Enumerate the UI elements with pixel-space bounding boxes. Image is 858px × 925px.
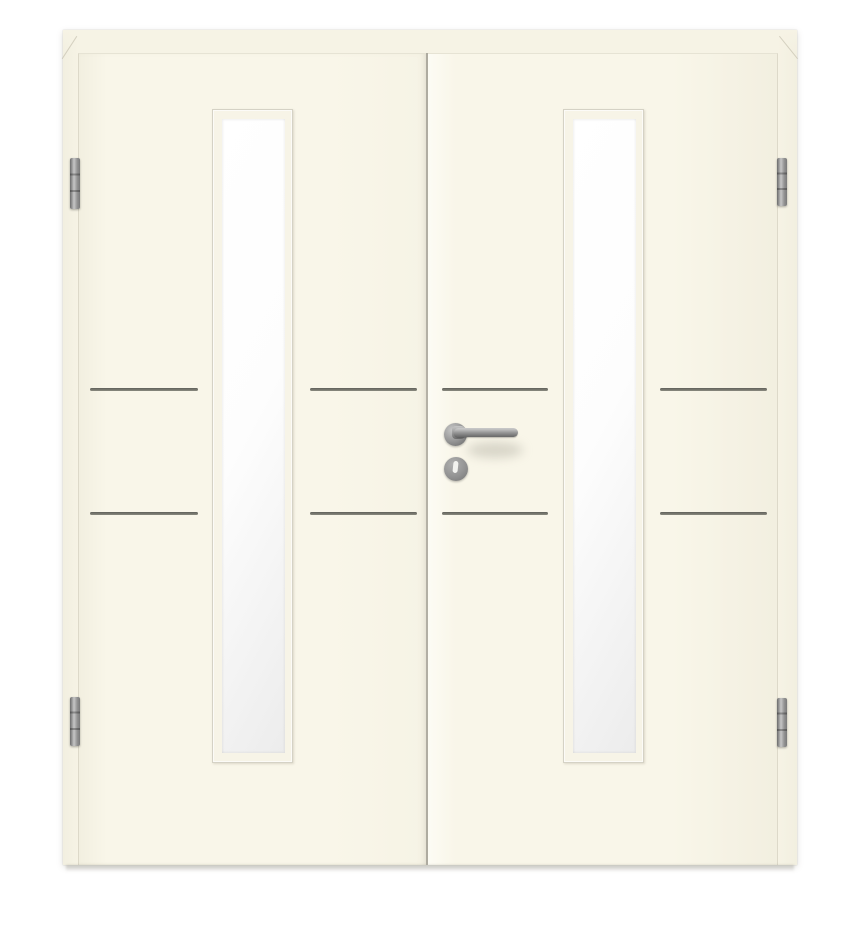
groove-line <box>90 512 198 515</box>
hinge-bottom-right <box>777 698 787 747</box>
groove-line <box>442 388 548 391</box>
groove-line <box>310 512 417 515</box>
groove-line <box>90 388 198 391</box>
frame-miter-joint-right <box>779 36 798 59</box>
handle-shadow <box>467 442 523 458</box>
groove-line <box>442 512 548 515</box>
door-handle-lever <box>454 428 518 437</box>
product-image-canvas <box>0 0 858 925</box>
keyhole-icon <box>452 461 458 473</box>
left-glass-lite-frame <box>212 109 293 763</box>
groove-line <box>660 512 767 515</box>
door-assembly <box>63 30 797 865</box>
right-glass-lite-frame <box>563 109 644 763</box>
right-door-leaf <box>427 53 778 865</box>
groove-line <box>310 388 417 391</box>
floor-shadow <box>66 865 794 872</box>
hinge-top-left <box>70 158 80 209</box>
groove-line <box>660 388 767 391</box>
lock-rosette <box>444 457 468 481</box>
frame-miter-joint-left <box>62 36 78 59</box>
left-glass-pane <box>222 119 285 753</box>
left-door-leaf <box>78 53 428 865</box>
hinge-bottom-left <box>70 697 80 746</box>
door-gap <box>426 53 428 865</box>
right-glass-pane <box>573 119 636 753</box>
hinge-top-right <box>777 158 787 206</box>
